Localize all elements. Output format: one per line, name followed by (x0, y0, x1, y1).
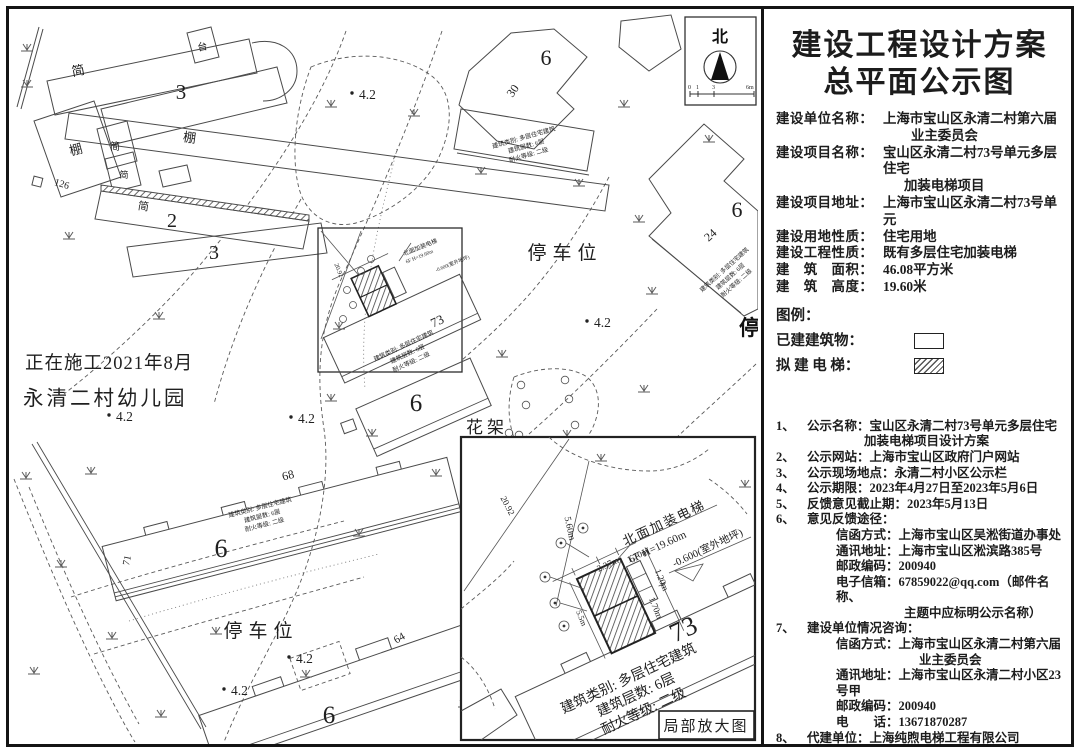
svg-text:1: 1 (696, 85, 699, 91)
pergola-label: 花架 (466, 418, 508, 437)
item-number: 2、 (776, 450, 807, 466)
legend-built-label: 已建建筑物： (776, 329, 914, 354)
building-68: 6 68 71 建筑类别: 多层住宅建筑 建筑层数: 6层 耐火等级: 二级 (100, 450, 461, 601)
shed-label: 棚 (182, 129, 197, 146)
north-arrow-box: 北 0 1 3 6m (685, 17, 756, 105)
sub-line: 通讯地址：上海市宝山区淞滨路385号 (776, 544, 1063, 560)
field-value: 上海市宝山区永清二村73号单元 (883, 195, 1063, 229)
sub-line: 邮政编码：200940 (776, 559, 1063, 575)
svg-text:6m: 6m (746, 85, 754, 91)
shed-label: 台 (196, 39, 208, 54)
svg-text:4.2: 4.2 (116, 409, 133, 424)
field-value-cont: 加装电梯项目 (776, 178, 984, 195)
building-number: 3 (209, 242, 219, 264)
inset-title: 局部放大图 (663, 718, 748, 735)
item-text: 代建单位：上海纯煦电梯工程有限公司 (807, 731, 1020, 744)
parking-label: 停车位 (527, 242, 602, 264)
field-label: 建设工程性质： (776, 245, 883, 262)
sheet-title-line2: 总平面公示图 (776, 64, 1063, 101)
unit-number: 68 (281, 467, 296, 483)
sub-line: 信函方式：上海市宝山区吴淞街道办事处 (776, 528, 1063, 544)
building-number: 6 (323, 702, 336, 729)
notice-list: 1、公示名称：宝山区永清二村73号单元多层住宅 加装电梯项目设计方案 2、公示网… (776, 419, 1063, 744)
building-number: 6 (732, 197, 743, 222)
project-site-73: 20.92 北面加装电梯 6F H=19.60m (303, 228, 481, 383)
svg-text:4.2: 4.2 (594, 315, 611, 330)
item-number: 1、 (776, 419, 807, 435)
ground-label-small: -0.600(室外地坪) (434, 253, 471, 273)
kindergarten-label: 永清二村幼儿园 (23, 387, 188, 410)
north-label: 北 (712, 28, 728, 46)
legend-proposed-label: 拟 建 电 梯： (776, 354, 914, 379)
item-number: 7、 (776, 621, 807, 637)
field-value: 46.08平方米 (883, 262, 1063, 279)
building-partial-ne (619, 15, 681, 71)
field-label: 建设项目名称： (776, 145, 883, 179)
building-number: 6 (410, 390, 423, 417)
shed-label: 简 (70, 62, 86, 79)
item-number: 3、 (776, 466, 807, 482)
sub-line-cont: 业主委员会 (776, 653, 1063, 669)
item-text: 建设单位情况咨询： (807, 621, 920, 637)
sub-line: 邮政编码：200940 (776, 699, 1063, 715)
item-number: 5、 (776, 497, 807, 513)
svg-text:4.2: 4.2 (296, 651, 313, 666)
dim-label: 20.92 (332, 262, 344, 278)
shed-label: 简 (119, 169, 128, 180)
building-number: 6 (215, 534, 228, 563)
shed-label: 简 (110, 140, 120, 153)
sub-line: 通讯地址：上海市宝山区永清二村小区23号甲 (776, 668, 1063, 699)
item-number: 6、 (776, 512, 807, 528)
construction-note: 正在施工2021年8月 (25, 353, 193, 374)
item-number: 8、 (776, 731, 807, 744)
building-number: 2 (167, 210, 177, 232)
sub-line: 信函方式：上海市宝山区永清二村第六届 (776, 637, 1063, 653)
building-24: 6 24 建筑类别: 多层住宅建筑 建筑层数: 6层 耐火等级: 二级 (649, 124, 758, 316)
field-value: 既有多层住宅加装电梯 (883, 245, 1063, 262)
item-text: 公示名称：宝山区永清二村73号单元多层住宅 (807, 419, 1057, 435)
svg-text:3: 3 (712, 85, 715, 91)
legend-proposed-swatch (914, 358, 944, 374)
legend-built-swatch (914, 333, 944, 349)
legend-title: 图例： (776, 304, 1063, 329)
item-text: 意见反馈途径： (807, 512, 895, 528)
number-label: 126 (53, 177, 70, 192)
svg-text:0: 0 (688, 85, 691, 91)
building-number: 73 (428, 311, 446, 330)
field-value-cont: 业主委员会 (776, 128, 978, 145)
public-notice-sheet: 简 棚 台 3 棚 简 简 126 简 2 3 6 (0, 0, 1080, 753)
field-value: 19.60米 (883, 279, 1063, 296)
item-text: 公示现场地点：永清二村小区公示栏 (807, 466, 1007, 482)
sheet-border: 简 棚 台 3 棚 简 简 126 简 2 3 6 (6, 6, 1074, 747)
field-label: 建 筑 高度： (776, 279, 883, 296)
building-number: 6 (541, 45, 552, 70)
field-label: 建设用地性质： (776, 229, 883, 246)
parking-label-cut: 停 (739, 316, 758, 340)
site-plan-map: 简 棚 台 3 棚 简 简 126 简 2 3 6 (9, 9, 758, 744)
field-label: 建设单位名称： (776, 111, 883, 128)
field-label: 建设项目地址： (776, 195, 883, 229)
field-label: 建 筑 面积： (776, 262, 883, 279)
item-text: 反馈意见截止期：2023年5月13日 (807, 497, 988, 513)
sub-line: 电 话：13671870287 (776, 715, 1063, 731)
parking-label: 停车位 (223, 620, 298, 642)
unit-number: 24 (701, 226, 719, 244)
shed-label: 简 (137, 198, 150, 213)
svg-text:4.2: 4.2 (231, 683, 248, 698)
svg-text:4.2: 4.2 (298, 411, 315, 426)
unit-number: 30 (504, 82, 522, 100)
legend: 图例： 已建建筑物： 拟 建 电 梯： (776, 304, 1063, 379)
project-info: 建设单位名称：上海市宝山区永清二村第六届 业主委员会 建设项目名称：宝山区永清二… (776, 111, 1063, 296)
shed-label: 棚 (68, 141, 84, 159)
item-text: 公示网站：上海市宝山区政府门户网站 (807, 450, 1020, 466)
sheet-title-line1: 建设工程设计方案 (776, 27, 1063, 64)
sub-line: 电子信箱：67859022@qq.com（邮件名称、 (776, 575, 1063, 606)
building-number: 3 (176, 80, 187, 104)
item-text-cont: 加装电梯项目设计方案 (776, 434, 1063, 450)
detail-inset: 20.92 5.60m (461, 437, 758, 744)
item-text: 公示期限：2023年4月27日至2023年5月6日 (807, 481, 1038, 497)
field-value: 上海市宝山区永清二村第六届 (883, 111, 1063, 128)
info-panel: 建设工程设计方案 总平面公示图 建设单位名称：上海市宝山区永清二村第六届 业主委… (761, 9, 1071, 744)
site-plan-svg: 简 棚 台 3 棚 简 简 126 简 2 3 6 (9, 9, 758, 744)
item-number: 4、 (776, 481, 807, 497)
field-value: 住宅用地 (883, 229, 1063, 246)
field-value: 宝山区永清二村73号单元多层住宅 (883, 145, 1063, 179)
svg-text:4.2: 4.2 (359, 87, 376, 102)
building-30: 6 30 建筑类别: 多层住宅建筑 建筑层数: 6层 耐火等级: 二级 (454, 29, 594, 175)
sub-line-cont: 主题中应标明公示名称） (776, 606, 1063, 622)
unit-number: 71 (121, 554, 134, 566)
building-cluster-northwest (17, 27, 609, 277)
